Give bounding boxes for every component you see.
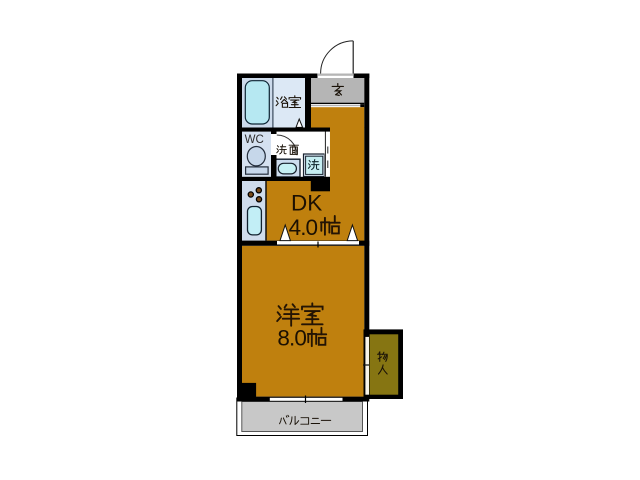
svg-text:DK: DK (291, 191, 322, 216)
svg-text:4.0: 4.0 (289, 215, 318, 240)
svg-text:WC: WC (245, 134, 264, 146)
svg-text:8.0: 8.0 (277, 325, 306, 350)
